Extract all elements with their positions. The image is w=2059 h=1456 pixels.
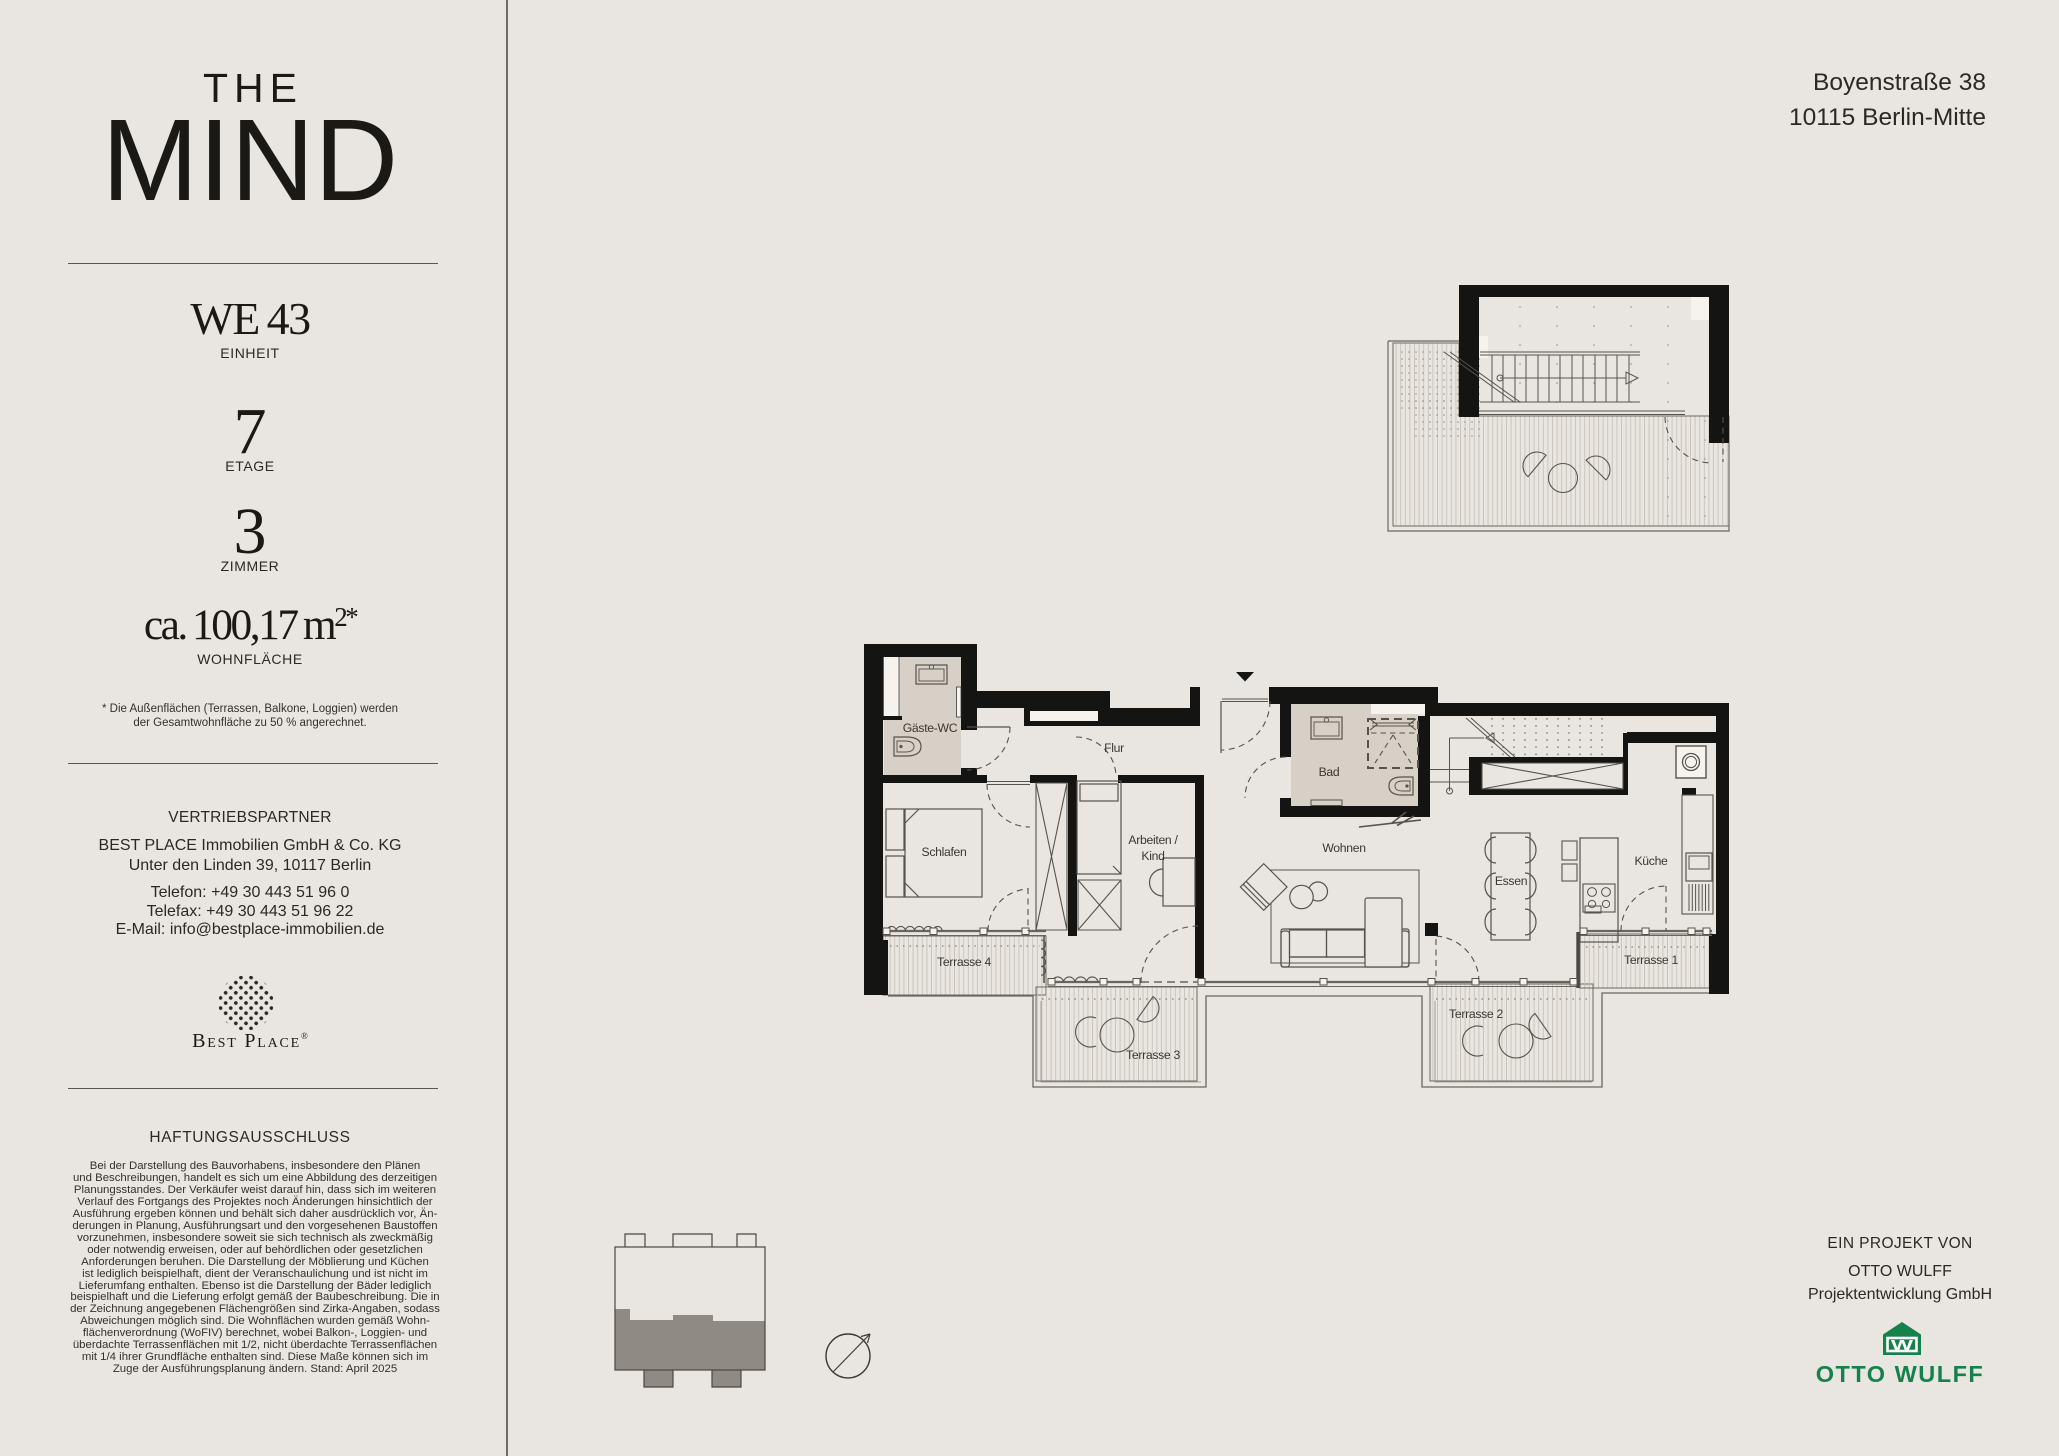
svg-text:Küche: Küche (1634, 854, 1668, 868)
svg-text:Terrasse 3: Terrasse 3 (1126, 1048, 1180, 1062)
svg-text:Schlafen: Schlafen (921, 845, 966, 859)
svg-text:Bad: Bad (1319, 765, 1340, 779)
svg-text:Flur: Flur (1104, 741, 1124, 755)
svg-text:Terrasse 1: Terrasse 1 (1624, 953, 1678, 967)
svg-text:Essen: Essen (1495, 874, 1527, 888)
svg-text:Arbeiten /: Arbeiten / (1128, 833, 1178, 847)
svg-text:Kind: Kind (1141, 849, 1164, 863)
svg-text:Wohnen: Wohnen (1322, 841, 1365, 855)
svg-text:Gäste-WC: Gäste-WC (903, 721, 958, 735)
svg-text:Terrasse 2: Terrasse 2 (1449, 1007, 1503, 1021)
svg-text:Terrasse 4: Terrasse 4 (937, 955, 991, 969)
